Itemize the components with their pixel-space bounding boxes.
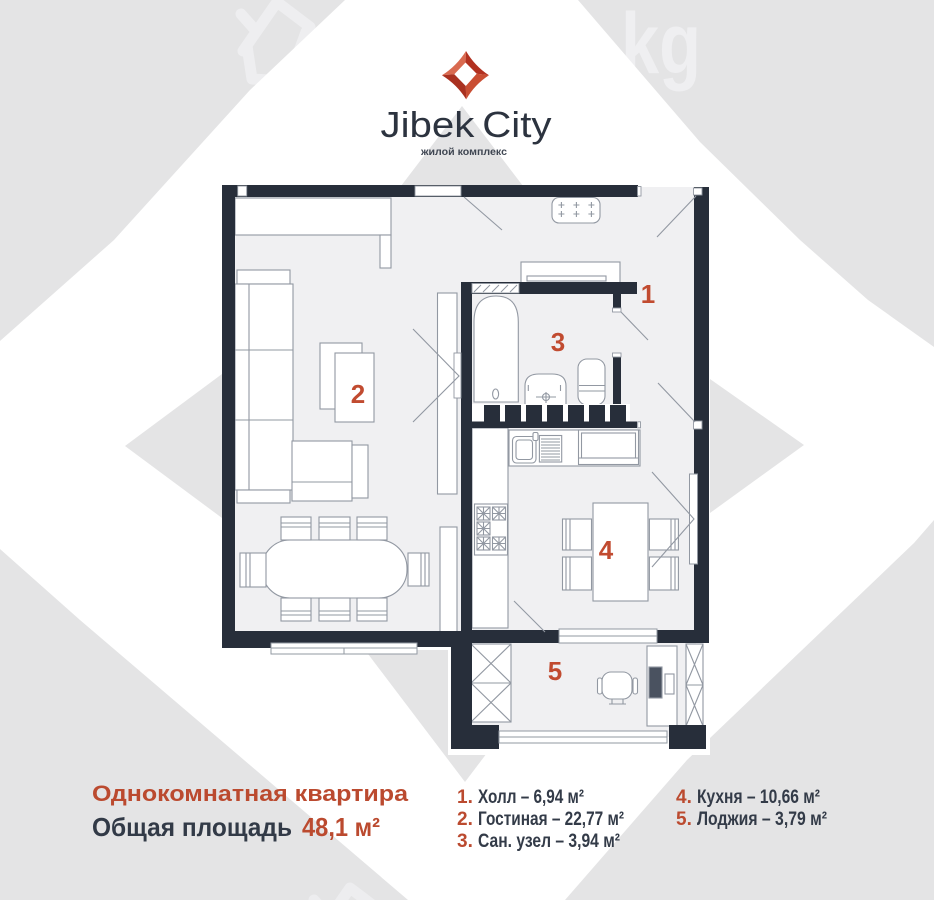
svg-text:5.: 5. bbox=[676, 809, 692, 830]
svg-text:Однокомнатная квартира: Однокомнатная квартира bbox=[92, 781, 409, 806]
svg-text:4: 4 bbox=[599, 535, 614, 565]
svg-text:Общая площадь: Общая площадь bbox=[92, 812, 292, 842]
svg-text:жилой комплекс: жилой комплекс bbox=[420, 147, 508, 158]
svg-text:Сан. узел – 3,94 м²: Сан. узел – 3,94 м² bbox=[478, 831, 620, 852]
svg-text:5: 5 bbox=[548, 656, 562, 686]
svg-text:Холл – 6,94 м²: Холл – 6,94 м² bbox=[478, 787, 584, 808]
svg-text:3.: 3. bbox=[457, 831, 473, 852]
svg-text:Гостиная – 22,77 м²: Гостиная – 22,77 м² bbox=[478, 809, 624, 830]
svg-text:1: 1 bbox=[641, 279, 655, 309]
svg-text:Лоджия – 3,79 м²: Лоджия – 3,79 м² bbox=[697, 809, 827, 830]
svg-text:2: 2 bbox=[351, 379, 365, 409]
svg-text:4.: 4. bbox=[676, 787, 692, 808]
svg-text:1.: 1. bbox=[457, 787, 473, 808]
svg-text:48,1 м²: 48,1 м² bbox=[302, 812, 380, 842]
svg-text:Кухня – 10,66 м²: Кухня – 10,66 м² bbox=[697, 787, 820, 808]
svg-text:JibekCity: JibekCity bbox=[381, 104, 552, 145]
svg-text:3: 3 bbox=[551, 327, 565, 357]
svg-text:2.: 2. bbox=[457, 809, 473, 830]
